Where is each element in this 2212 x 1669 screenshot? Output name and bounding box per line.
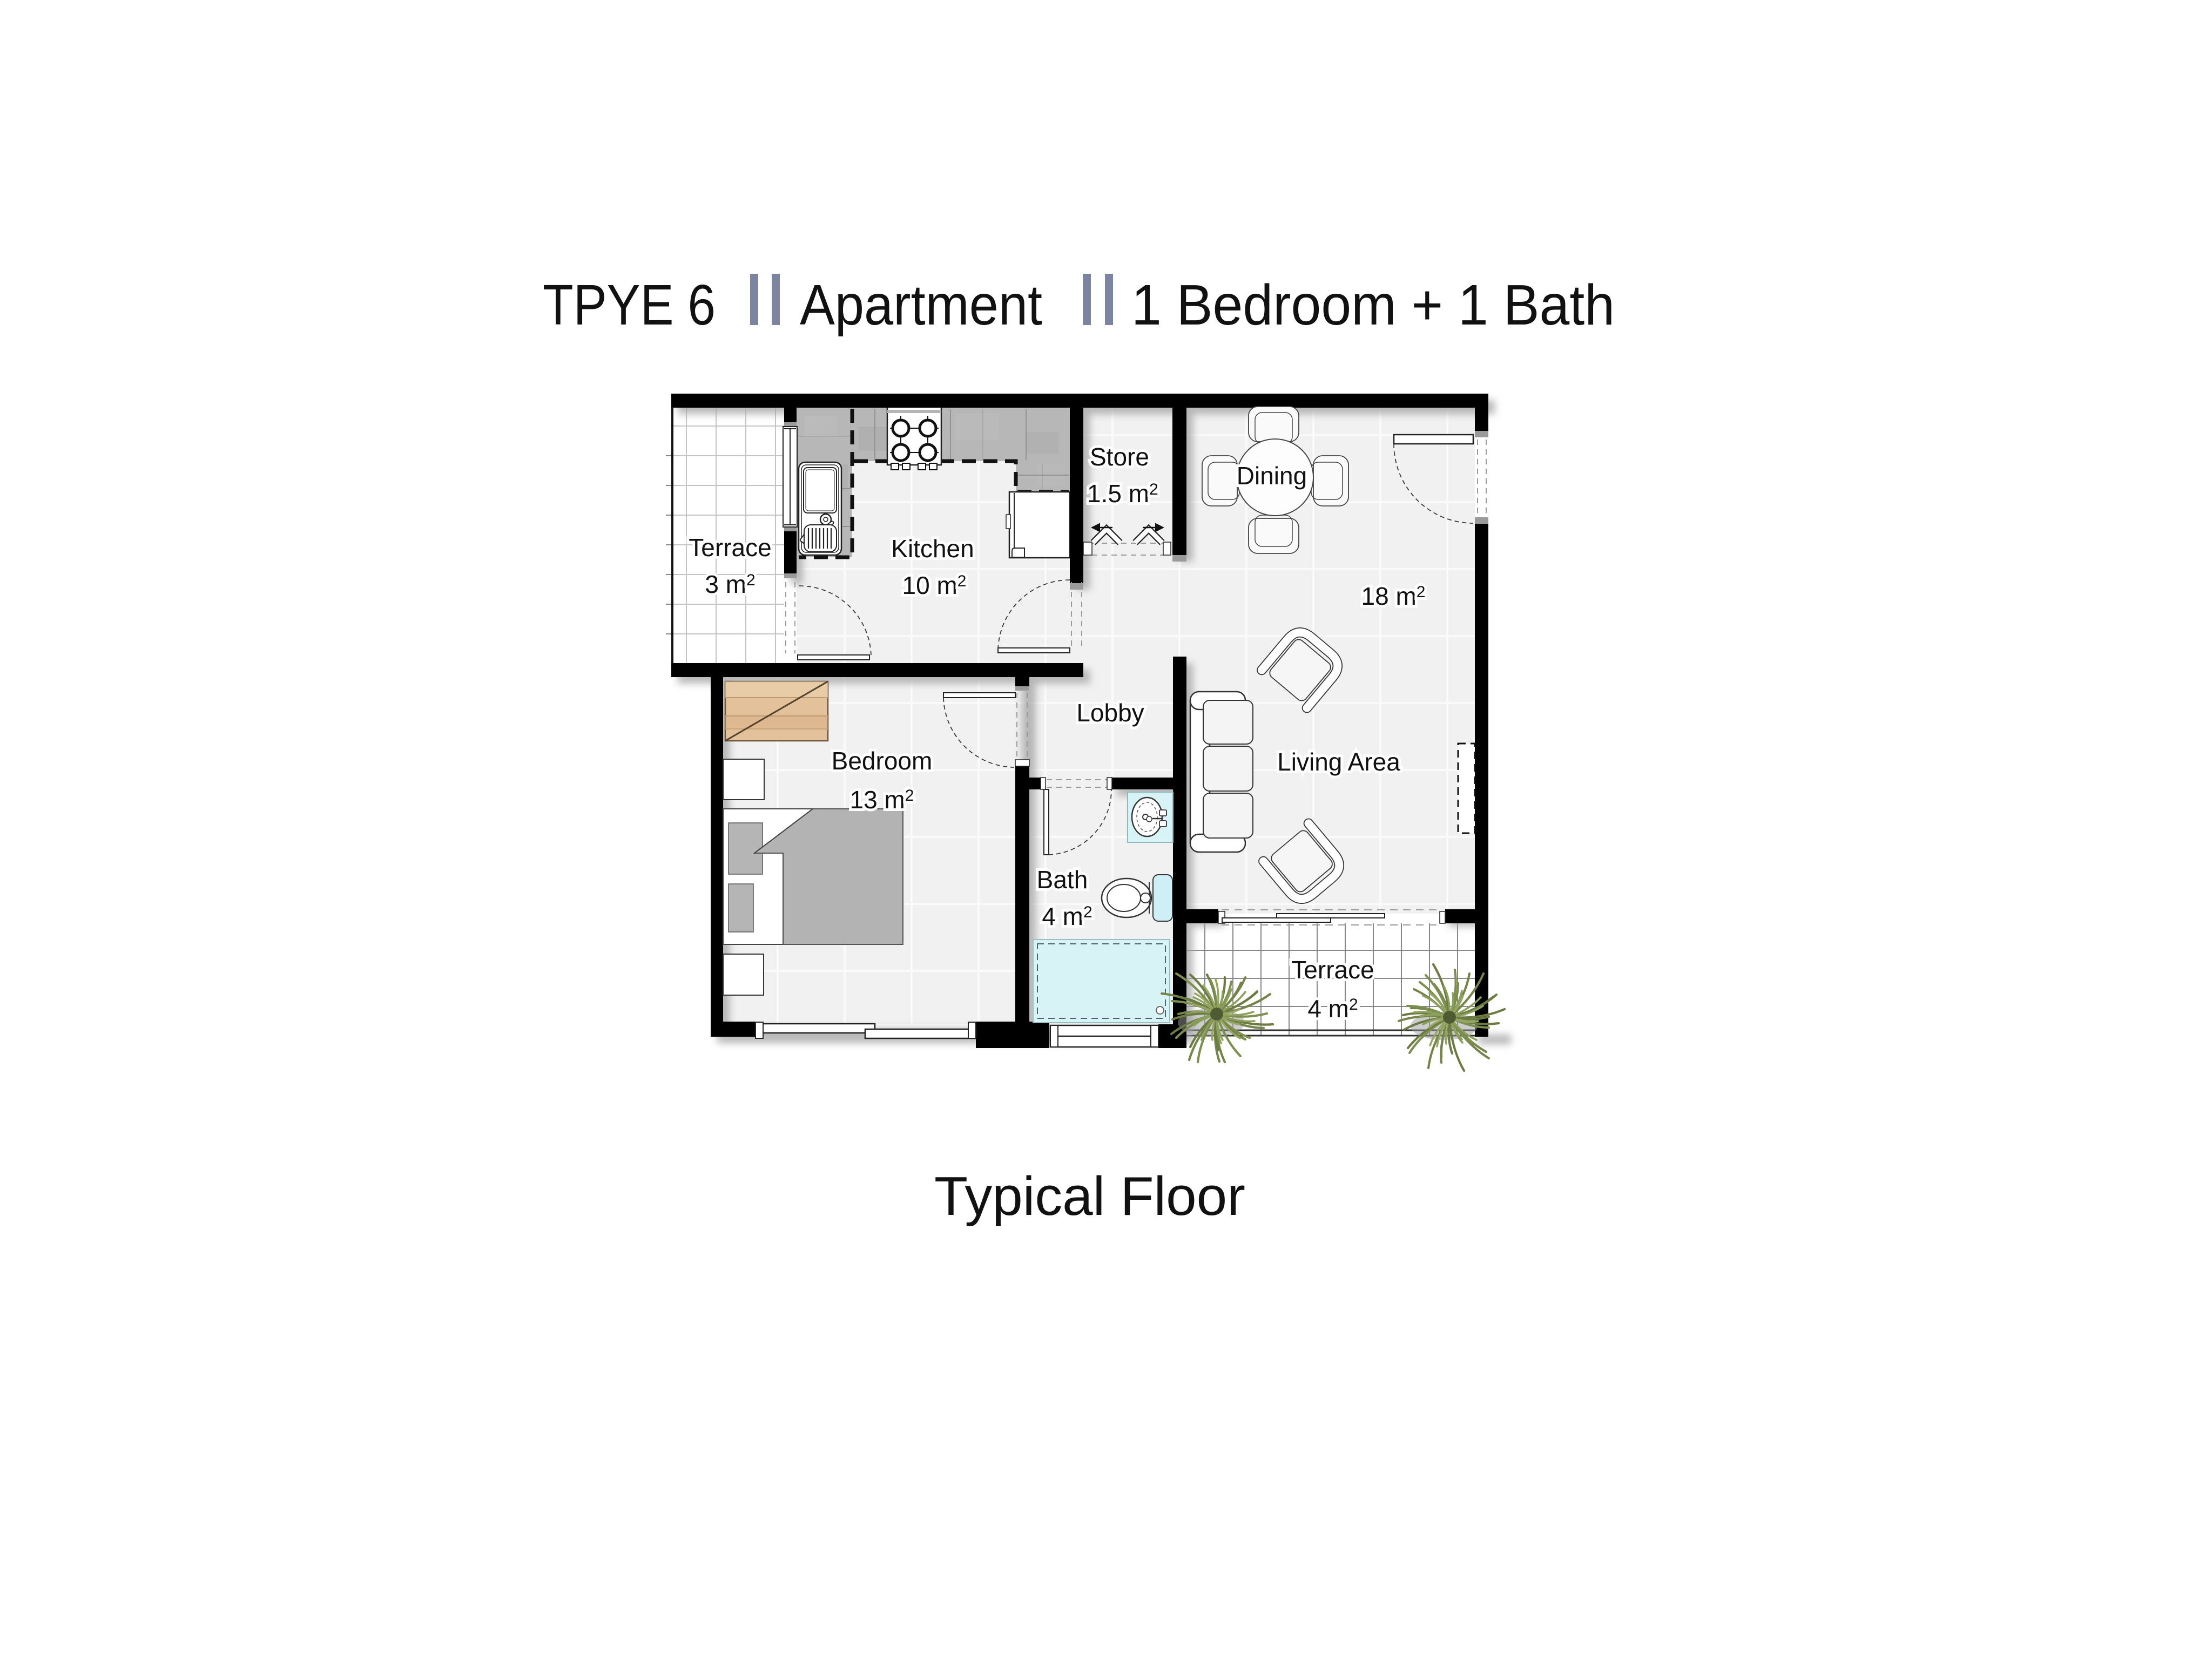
svg-text:TPYE 6: TPYE 6 (543, 273, 716, 337)
svg-text:Bedroom: Bedroom (832, 747, 933, 775)
svg-text:Terrace: Terrace (689, 533, 771, 562)
svg-text:Kitchen: Kitchen (891, 535, 974, 563)
svg-text:Store: Store (1090, 443, 1149, 471)
svg-text:Dining: Dining (1237, 462, 1307, 490)
svg-text:Apartment: Apartment (800, 273, 1042, 337)
svg-text:Terrace: Terrace (1291, 956, 1374, 984)
svg-text:13 m2: 13 m2 (850, 786, 914, 814)
svg-text:Living Area: Living Area (1277, 748, 1400, 776)
svg-text:Typical Floor: Typical Floor (934, 1166, 1245, 1227)
svg-text:1.5 m2: 1.5 m2 (1087, 479, 1158, 508)
svg-text:Bath: Bath (1037, 866, 1088, 894)
svg-text:1 Bedroom + 1 Bath: 1 Bedroom + 1 Bath (1131, 273, 1615, 337)
svg-text:Lobby: Lobby (1076, 699, 1144, 727)
svg-text:18 m2: 18 m2 (1361, 582, 1426, 610)
svg-text:10 m2: 10 m2 (902, 571, 967, 599)
